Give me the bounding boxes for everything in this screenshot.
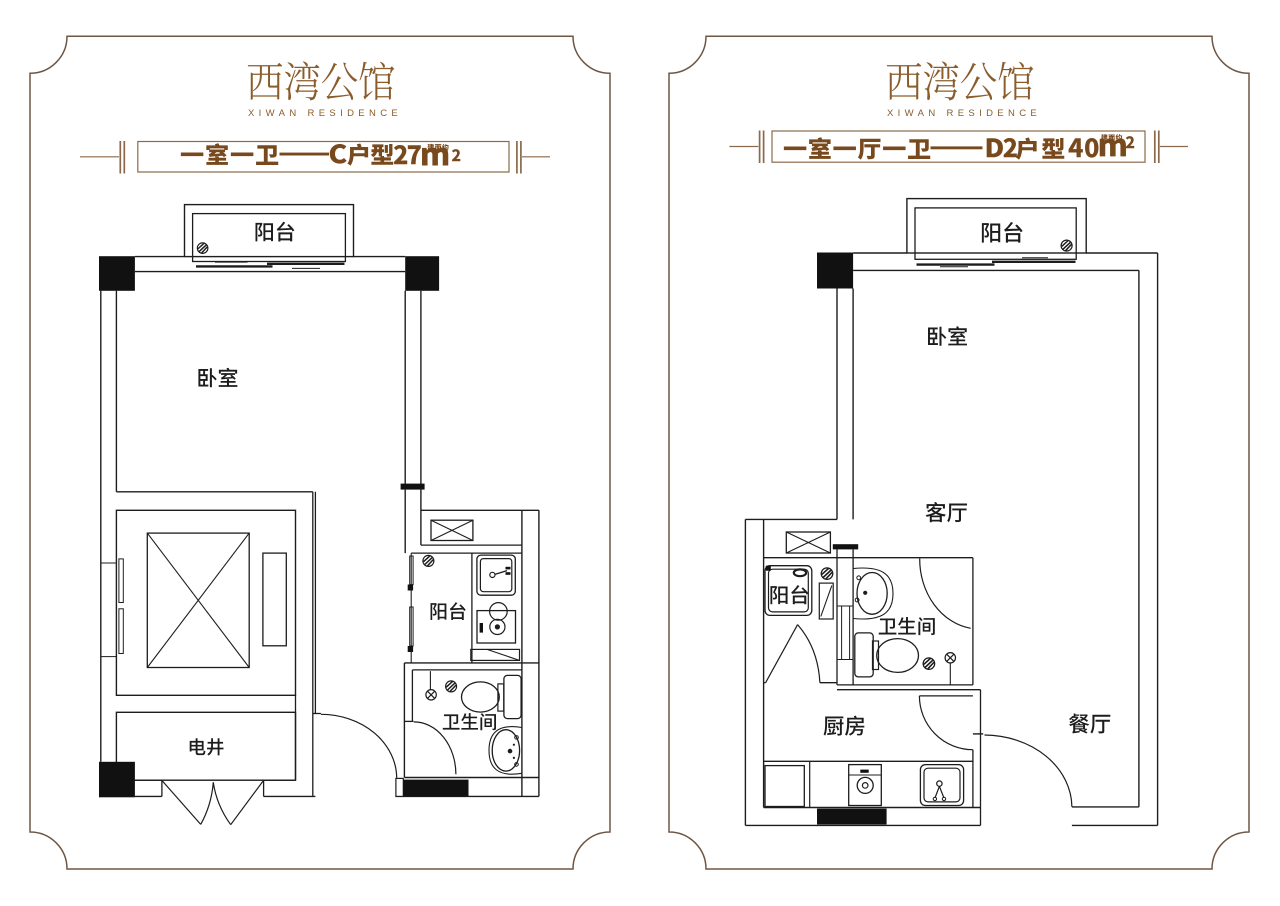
svg-text:XIWAN RESIDENCE: XIWAN RESIDENCE <box>248 108 402 119</box>
svg-text:XIWAN RESIDENCE: XIWAN RESIDENCE <box>887 108 1041 119</box>
